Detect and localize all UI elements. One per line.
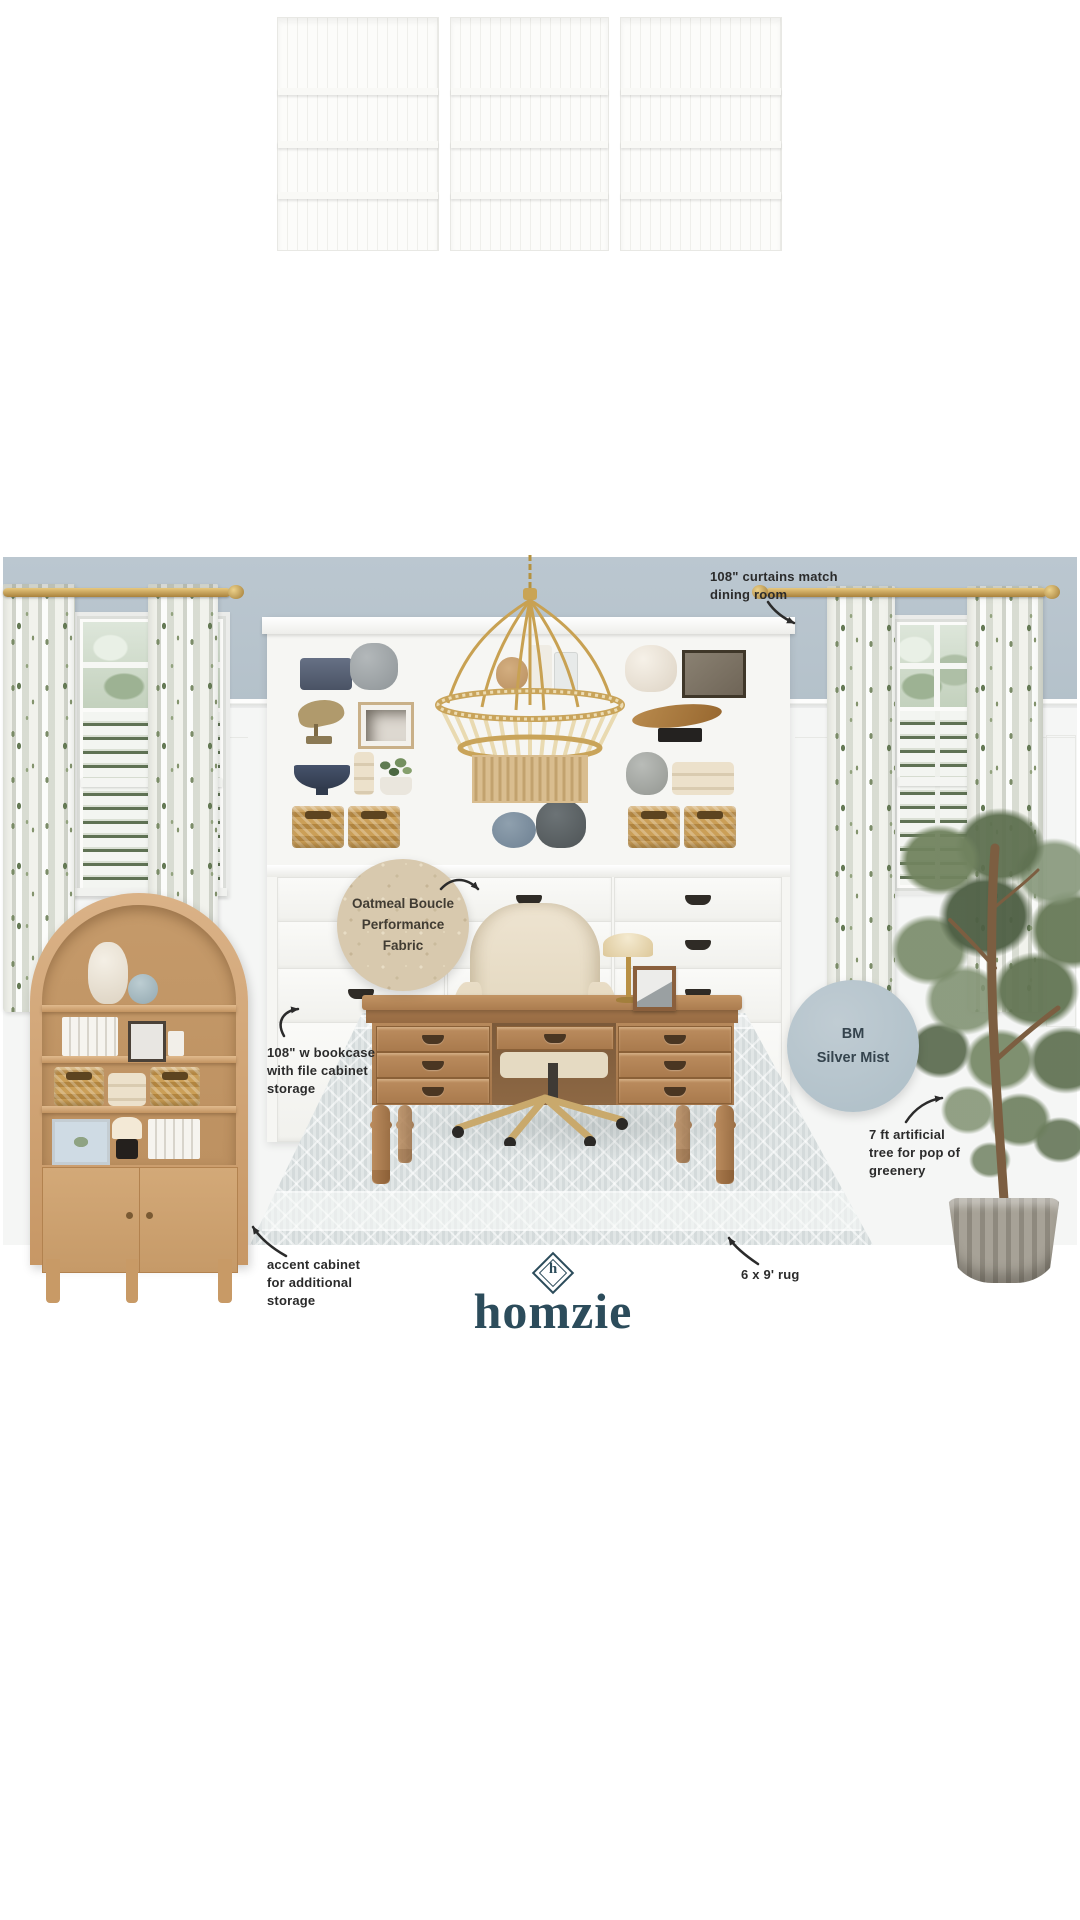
annotation-bookcase: 108" w bookcase with file cabinet storag…: [267, 1044, 375, 1098]
blue-vase: [492, 812, 536, 848]
blue-vase: [128, 974, 158, 1004]
shutter-rail: [898, 777, 975, 786]
woven-basket: [348, 806, 400, 848]
arch-cabinet-interior: [42, 905, 236, 1165]
desk-drawer: [376, 1052, 490, 1078]
white-vase: [528, 645, 552, 690]
books: [148, 1119, 200, 1159]
gray-urn: [626, 752, 668, 795]
desk-drawer: [618, 1078, 732, 1104]
desk-top-edge: [366, 1010, 738, 1023]
desk-leg: [398, 1105, 412, 1163]
cabinet-door: [42, 1167, 140, 1273]
decor-box: [300, 658, 352, 690]
decor-stand: [658, 728, 702, 742]
logo-wordmark: homzie: [403, 1282, 703, 1340]
moodboard-page: Oatmeal Boucle Performance Fabric BM Sil…: [0, 0, 1080, 1920]
desk-drawer: [618, 1026, 732, 1052]
framed-art: [358, 702, 414, 749]
rod-finial: [228, 585, 244, 599]
window-glass: [900, 625, 973, 707]
textured-vase: [354, 752, 374, 795]
paint-swatch-line: BM: [787, 1022, 919, 1046]
desk-leg: [716, 1105, 734, 1184]
arch-cabinet: [30, 893, 248, 1265]
woven-basket: [628, 806, 680, 848]
lamp-stem: [626, 952, 631, 1000]
white-vase: [88, 942, 128, 1004]
annotation-tree: 7 ft artificial tree for pop of greenery: [869, 1126, 960, 1180]
annotation-accent-cabinet: accent cabinet for additional storage: [267, 1256, 360, 1310]
fabric-swatch-line: Oatmeal Boucle: [337, 893, 469, 914]
logo-monogram: h: [538, 1261, 568, 1278]
decor-vase: [350, 643, 398, 690]
desk-photo-frame: [633, 966, 676, 1011]
horse-painting: [682, 650, 746, 698]
cabinet-leg: [126, 1259, 138, 1303]
rod-finial: [1044, 585, 1060, 599]
woven-basket: [684, 806, 736, 848]
woven-basket: [292, 806, 344, 848]
cabinet-leg: [46, 1259, 60, 1303]
chair-post: [548, 1063, 558, 1105]
desk-center-drawer: [496, 1026, 614, 1050]
annotation-rug: 6 x 9' rug: [741, 1266, 800, 1284]
candle: [168, 1031, 184, 1056]
fabric-swatch-circle: Oatmeal Boucle Performance Fabric: [337, 859, 469, 991]
desk-leg: [372, 1105, 390, 1184]
hutch-shelves-right: [620, 17, 782, 251]
books: [62, 1017, 118, 1056]
white-jug: [625, 645, 677, 692]
desk-drawer: [376, 1078, 490, 1104]
bird-base: [306, 736, 332, 744]
left-curtain-rod: [3, 588, 231, 597]
tree-planter-pot: [946, 1198, 1062, 1283]
rug-border-band: [262, 1193, 860, 1229]
paint-swatch-line: Silver Mist: [787, 1046, 919, 1070]
desk-top: [362, 995, 742, 1010]
paint-swatch-circle: BM Silver Mist: [787, 980, 919, 1112]
table-lamp-shade: [112, 1117, 142, 1139]
fabric-swatch-line: Fabric: [337, 935, 469, 956]
bowl-foot: [316, 787, 328, 795]
annotation-curtains: 108" curtains match dining room: [710, 568, 838, 604]
decor-object: [496, 657, 528, 690]
gray-jar: [536, 800, 586, 848]
stacked-towels: [672, 762, 734, 795]
hutch-shelves-center: [450, 17, 609, 251]
hutch-drawer: [614, 877, 782, 923]
fabric-swatch-line: Performance: [337, 914, 469, 935]
cream-stack: [108, 1073, 146, 1106]
lamp-shade: [603, 933, 653, 957]
desk-leg: [676, 1105, 690, 1163]
glass-hurricane: [554, 652, 578, 692]
desk-drawer: [376, 1026, 490, 1052]
hutch-crown: [262, 617, 795, 634]
cabinet-door: [139, 1167, 238, 1273]
woven-basket: [150, 1067, 200, 1106]
small-frame: [128, 1021, 166, 1062]
plant-pot: [380, 777, 412, 795]
woven-basket: [54, 1067, 104, 1106]
table-lamp-base: [116, 1139, 138, 1159]
desk-drawer: [618, 1052, 732, 1078]
cabinet-leg: [218, 1259, 232, 1303]
blue-art: [52, 1119, 110, 1165]
hutch-shelves-left: [277, 17, 439, 251]
